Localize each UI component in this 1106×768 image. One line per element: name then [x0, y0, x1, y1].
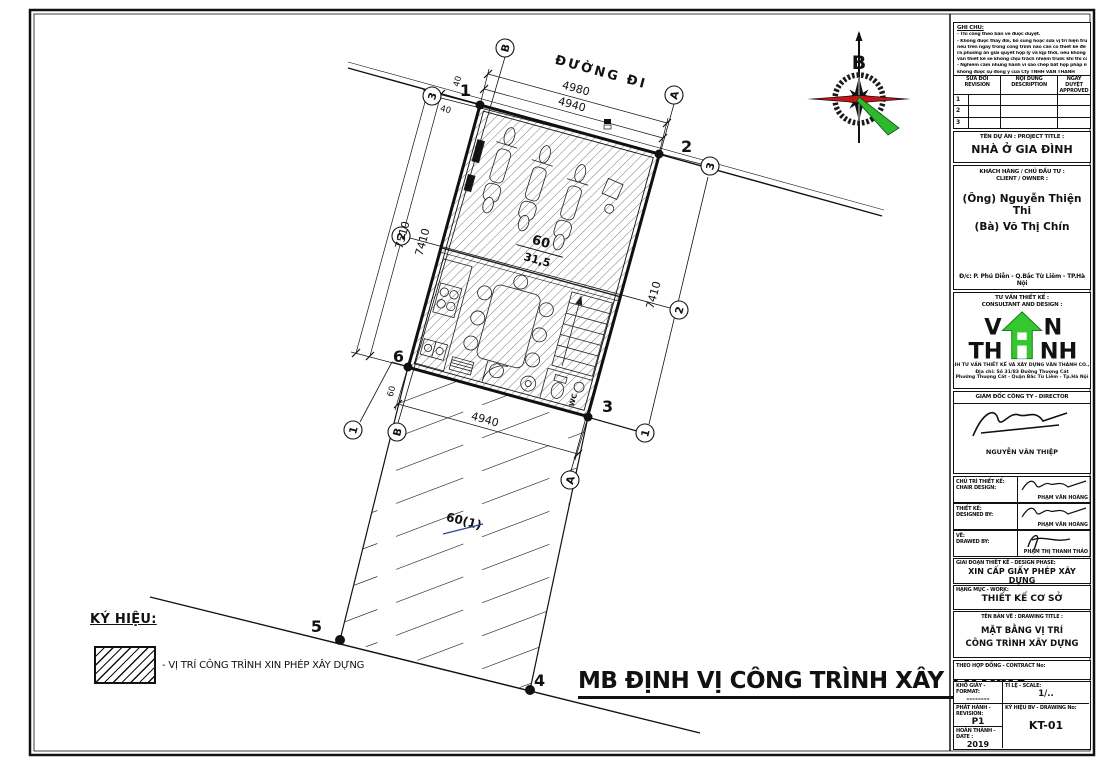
- axis-circle: 1: [344, 421, 362, 439]
- client-address: Đ/c: P. Phú Diễn - Q.Bắc Từ Liêm - TP.Hà…: [954, 273, 1090, 287]
- sign-row-drawn: VẼ: DRAWED BY: PHẠM THỊ THANH THẢO: [953, 530, 1091, 557]
- corner-4: 4: [534, 671, 545, 690]
- sign-row-designed: THIẾT KẾ: DESIGNED BY: PHẠM VĂN HOÀNG: [953, 503, 1091, 530]
- sign-row-chair: CHỦ TRÌ THIẾT KẾ: CHAIR DESIGN: PHẠM VĂN…: [953, 476, 1091, 503]
- logo-text: V: [984, 314, 1002, 340]
- client-name-2: (Bà) Võ Thị Chín: [954, 221, 1090, 233]
- corner-2: 2: [681, 137, 692, 156]
- revision-cell: PHÁT HÀNH - REVISION: P1: [954, 704, 1003, 727]
- corner-6: 6: [393, 347, 404, 366]
- notes-heading: GHI CHÚ:: [957, 25, 1087, 32]
- consultant-label-vi: TƯ VẤN THIẾT KẾ :: [954, 295, 1090, 302]
- axis-circle: B: [388, 423, 406, 441]
- axis-circle: A: [561, 471, 579, 489]
- note-line: - Không được thay đổi, bổ sung hoặc sửa …: [957, 39, 1087, 45]
- client-label-en: CLIENT / OWNER :: [954, 176, 1090, 183]
- corner-3: 3: [602, 397, 613, 416]
- phase-value: XIN CẤP GIẤY PHÉP XÂY DỰNG: [954, 567, 1090, 585]
- signature: [1020, 478, 1090, 494]
- revision-table: SỬA ĐỔI REVISION NỘI DUNG DESCRIPTION NG…: [954, 75, 1090, 128]
- phase-box: GIAI ĐOẠN THIẾT KẾ - DESIGN PHASE: XIN C…: [953, 558, 1091, 584]
- legend-hatch-swatch: [94, 646, 156, 684]
- client-name-1: (Ông) Nguyễn Thiện Thi: [954, 193, 1090, 217]
- axis-circle: 3: [423, 87, 441, 105]
- axis-circle: B: [496, 39, 514, 57]
- rev-header: NGÀY DUYỆT: [1058, 76, 1090, 88]
- drawing-no-cell: KÝ HIỆU BV - DRAWING No: KT-01: [1003, 704, 1089, 748]
- work-value: THIẾT KẾ CƠ SỞ: [954, 594, 1090, 604]
- drawing-title-label: TÊN BẢN VẼ : DRAWING TITLE :: [954, 612, 1090, 620]
- consultant-address-2: Phường Thượng Cát - Quận Bắc Từ Liêm - T…: [954, 375, 1090, 380]
- director-label: GIÁM ĐỐC CÔNG TY - DIRECTOR: [954, 394, 1090, 404]
- project-box: TÊN DỰ ÁN : PROJECT TITLE : NHÀ Ở GIA ĐÌ…: [953, 131, 1091, 163]
- axis-circle: 3: [701, 157, 719, 175]
- site-plan-sheet: WC 60 31,5: [0, 0, 1106, 768]
- project-title: NHÀ Ở GIA ĐÌNH: [954, 143, 1090, 156]
- notes-revision-box: GHI CHÚ: - Thi công theo bản vẽ được duy…: [953, 22, 1091, 129]
- site-plan-drawing: WC 60 31,5: [0, 0, 1106, 768]
- company-logo: V N TH NH TNHH TƯ VẤN THIẾT KẾ VÀ XÂY DỰ…: [955, 310, 1089, 368]
- drawing-title-line1: MẶT BẰNG VỊ TRÍ: [954, 626, 1090, 636]
- axis-circle: A: [665, 86, 683, 104]
- client-box: KHÁCH HÀNG / CHỦ ĐẦU TƯ : CLIENT / OWNER…: [953, 165, 1091, 290]
- work-box: HẠNG MỤC - WORK: THIẾT KẾ CƠ SỞ: [953, 585, 1091, 610]
- consultant-box: TƯ VẤN THIẾT KẾ : CONSULTANT AND DESIGN …: [953, 292, 1091, 389]
- signature: [1020, 531, 1090, 551]
- work-label: HẠNG MỤC - WORK:: [954, 586, 1090, 594]
- sheet-info-grid: KHỔ GIẤY - FORMAT: -------- TỈ LỆ - SCAL…: [953, 681, 1091, 750]
- director-signature: [967, 406, 1077, 448]
- note-line: - Nghiêm cấm những hành vi sao chép bất …: [957, 63, 1087, 69]
- director-box: GIÁM ĐỐC CÔNG TY - DIRECTOR NGUYỄN VĂN T…: [953, 391, 1091, 474]
- date-cell: HOÀN THÀNH - DATE : 2019: [954, 727, 1003, 748]
- legend-heading: KÝ HIỆU:: [90, 612, 157, 627]
- director-name: NGUYỄN VĂN THIỆP: [954, 448, 1090, 456]
- scale-cell: TỈ LỆ - SCALE: 1/..: [1003, 682, 1089, 704]
- client-label-vi: KHÁCH HÀNG / CHỦ ĐẦU TƯ :: [954, 169, 1090, 176]
- corner-5: 5: [311, 617, 322, 636]
- format-cell: KHỔ GIẤY - FORMAT: --------: [954, 682, 1003, 704]
- logo-text: NH: [1040, 338, 1078, 364]
- drawing-title-box: TÊN BẢN VẼ : DRAWING TITLE : MẶT BẰNG VỊ…: [953, 611, 1091, 658]
- revision-row: 3: [954, 118, 1090, 128]
- consultant-label-en: CONSULTANT AND DESIGN :: [954, 302, 1090, 309]
- axis-circle: 2: [670, 301, 688, 319]
- revision-row: 1: [954, 95, 1090, 106]
- phase-label: GIAI ĐOẠN THIẾT KẾ - DESIGN PHASE:: [954, 559, 1090, 567]
- contract-box: THEO HỢP ĐỒNG - CONTRACT No:: [953, 660, 1091, 680]
- legend-item-label: - VỊ TRÍ CÔNG TRÌNH XIN PHÉP XÂY DỰNG: [162, 660, 364, 671]
- project-label: TÊN DỰ ÁN : PROJECT TITLE :: [954, 134, 1090, 141]
- logo-text: TH: [968, 338, 1002, 364]
- axis-circle: 1: [636, 424, 654, 442]
- signature: [1020, 505, 1090, 521]
- revision-row: 2: [954, 106, 1090, 117]
- contract-label: THEO HỢP ĐỒNG - CONTRACT No:: [954, 661, 1090, 671]
- logo-text: N: [1043, 314, 1062, 340]
- north-label: B: [852, 52, 866, 74]
- drawing-title-line2: CÔNG TRÌNH XÂY DỰNG: [954, 639, 1090, 649]
